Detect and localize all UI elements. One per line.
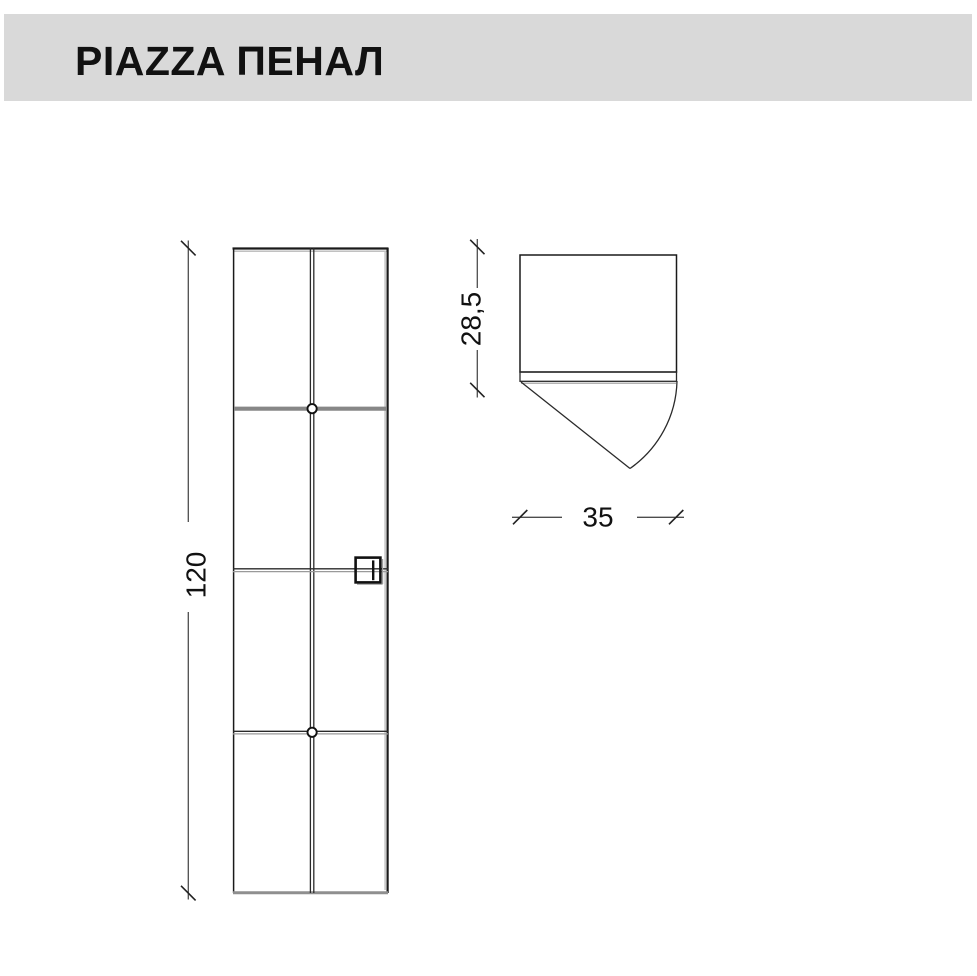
door-leaf-line [521,382,630,469]
door-split-line [310,248,313,893]
top-view-body [520,255,677,383]
technical-drawing: 120 28,5 [0,0,977,976]
width-dimension-label: 35 [582,502,613,533]
width-dimension: 35 [512,502,684,533]
height-dimension-label: 120 [181,552,212,599]
catalog-page: PIAZZA ПЕНАЛ [0,0,977,976]
door-swing [521,381,677,469]
shelf-line-3 [233,728,388,737]
door-swing-arc [630,381,677,469]
top-view: 28,5 35 [456,239,685,533]
knob-circle-top [308,404,317,413]
knob-circle-bottom [308,728,317,737]
door-handle [356,558,383,585]
depth-dimension: 28,5 [456,239,487,398]
height-dimension: 120 [181,241,212,901]
front-view: 120 [181,241,389,901]
shelf-line-1 [234,404,387,413]
depth-dimension-label: 28,5 [456,292,487,347]
